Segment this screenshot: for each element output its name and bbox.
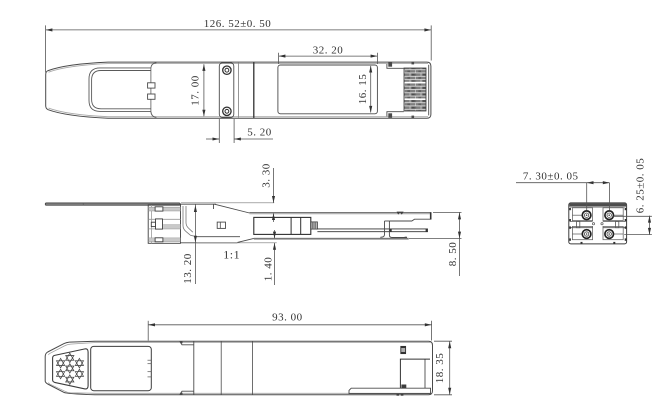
svg-text:18. 35: 18. 35 — [434, 353, 446, 384]
svg-text:126. 52±0. 50: 126. 52±0. 50 — [204, 18, 272, 30]
svg-text:7. 30±0. 05: 7. 30±0. 05 — [523, 170, 579, 182]
svg-text:6. 25±0. 05: 6. 25±0. 05 — [635, 158, 647, 214]
svg-text:17. 00: 17. 00 — [190, 75, 202, 106]
svg-text:13. 20: 13. 20 — [182, 253, 194, 284]
svg-text:1:1: 1:1 — [223, 248, 240, 262]
svg-text:32. 20: 32. 20 — [313, 45, 344, 57]
svg-text:93. 00: 93. 00 — [272, 312, 303, 324]
svg-text:8. 50: 8. 50 — [447, 242, 459, 267]
svg-text:1. 40: 1. 40 — [263, 257, 275, 282]
svg-text:16. 15: 16. 15 — [357, 74, 369, 105]
svg-text:3. 30: 3. 30 — [260, 163, 272, 188]
svg-text:5. 20: 5. 20 — [247, 127, 272, 139]
